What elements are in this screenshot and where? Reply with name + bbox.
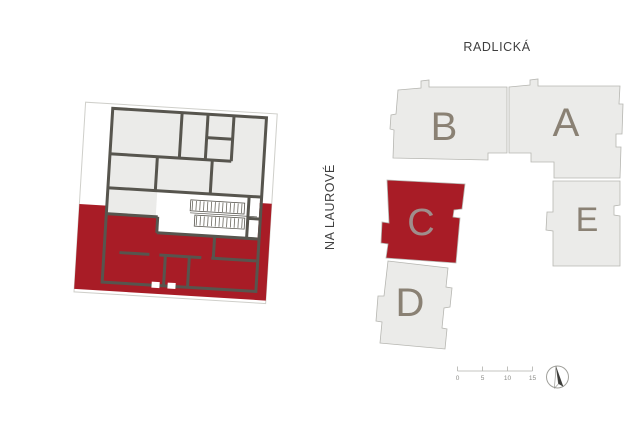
building-d-label: D — [396, 281, 425, 325]
building-a: A — [509, 79, 623, 178]
building-a-label: A — [553, 101, 580, 145]
scale-tick-10: 10 — [504, 375, 512, 382]
building-e: E — [546, 181, 620, 266]
building-c: C — [381, 180, 465, 263]
scale-tick-0: 0 — [456, 375, 460, 382]
scale-bar: 0 5 10 15 — [456, 367, 537, 383]
floor-plan — [74, 102, 277, 303]
plan-locator-page: B A C D E RADLICKÁ NA LAUROVÉ — [0, 0, 631, 422]
scale-tick-15: 15 — [529, 375, 537, 382]
building-e-label: E — [576, 201, 599, 239]
building-d: D — [376, 261, 452, 349]
building-c-label: C — [407, 202, 434, 244]
site-plan: B A C D E — [376, 79, 623, 349]
scale-tick-5: 5 — [481, 375, 485, 382]
street-label-na-laurove: NA LAUROVÉ — [322, 164, 337, 250]
north-arrow — [547, 365, 569, 388]
main-graphic: B A C D E RADLICKÁ NA LAUROVÉ — [0, 0, 631, 422]
building-b: B — [390, 80, 507, 160]
building-b-label: B — [431, 105, 458, 149]
scale-bar-ticks — [458, 367, 533, 372]
street-label-radlicka: RADLICKÁ — [463, 39, 530, 54]
